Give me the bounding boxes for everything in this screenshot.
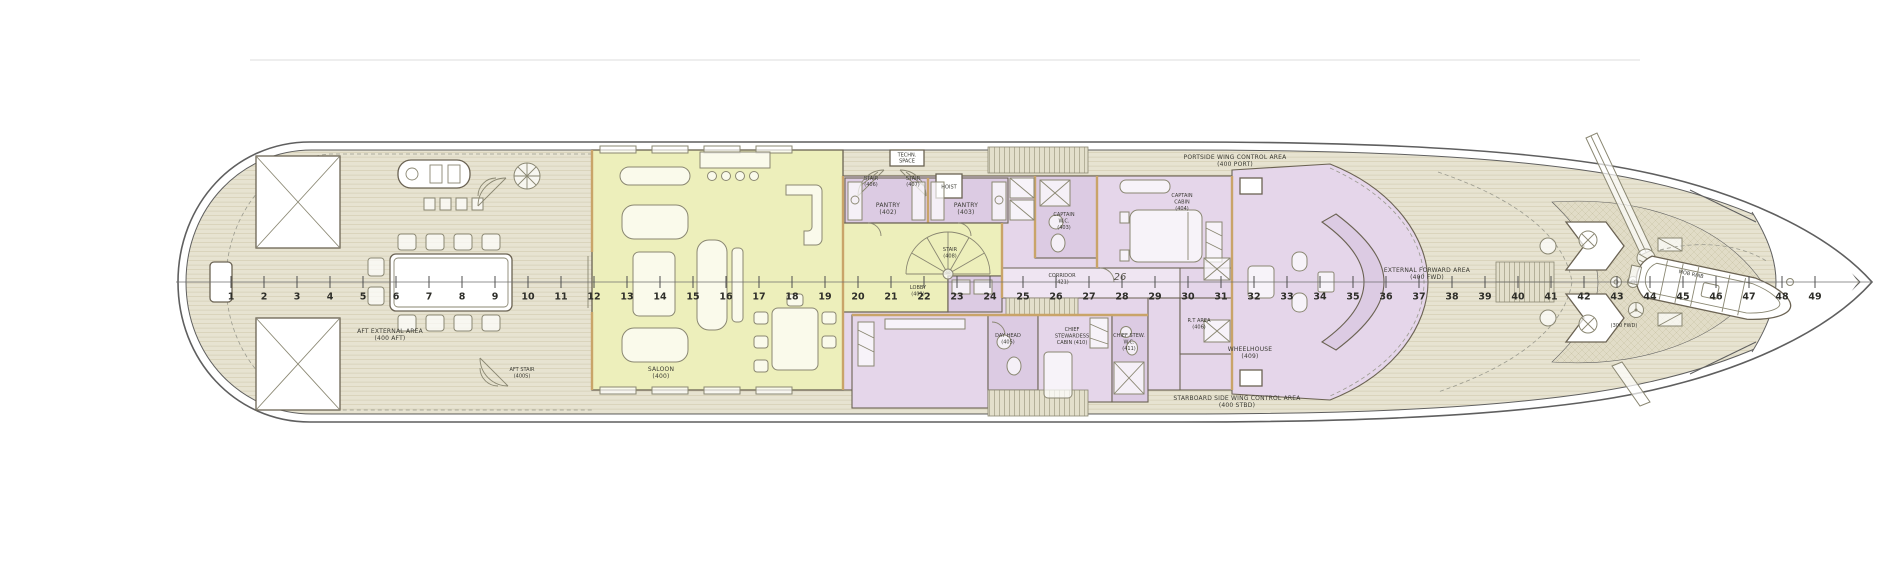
chair: [426, 234, 444, 250]
wing-door-stbd: [1240, 370, 1262, 386]
label-port-wing-num: (400 PORT): [1217, 161, 1253, 168]
chair: [368, 287, 384, 305]
frame-number: 3: [294, 292, 301, 303]
chair: [398, 234, 416, 250]
console-table: [620, 167, 690, 185]
frame-number: 42: [1577, 292, 1590, 303]
wing-door-port: [1240, 178, 1262, 194]
bar-stool: [440, 198, 451, 210]
frame-number: 39: [1478, 292, 1491, 303]
label-external-forward-num: (400 FWD): [1410, 274, 1444, 281]
foredeck-table-stbd-icon: [1540, 310, 1556, 326]
frame-number: 35: [1346, 292, 1359, 303]
shelf-unit: [858, 322, 874, 366]
frame-number: 12: [587, 292, 600, 303]
sofa: [1120, 180, 1170, 193]
frame-number: 24: [983, 292, 997, 303]
label-rt-area-num: (406): [1192, 325, 1205, 331]
chair: [822, 336, 836, 348]
frame-number: 36: [1379, 292, 1393, 303]
toilet-icon: [1051, 234, 1065, 252]
label-stair-port-2-num: (407): [906, 182, 919, 188]
foredeck-table-port-icon: [1540, 238, 1556, 254]
frame-number: 37: [1412, 292, 1425, 303]
side-table: [732, 248, 743, 322]
sofa: [622, 205, 688, 239]
label-frame-26-note: 26: [1114, 272, 1127, 283]
chair: [454, 315, 472, 331]
frame-number: 28: [1115, 292, 1129, 303]
label-captain-wc-3: (403): [1057, 225, 1070, 231]
label-lobby-num: (401): [911, 292, 924, 298]
label-techn-space-2: SPACE: [899, 159, 915, 165]
label-wheelhouse-num: (409): [1241, 353, 1258, 360]
frame-number: 16: [719, 292, 733, 303]
window: [756, 387, 792, 394]
window: [600, 387, 636, 394]
frame-number: 25: [1016, 292, 1029, 303]
frame-number: 9: [492, 292, 499, 303]
liferaft-hatch-port-icon: [256, 156, 340, 248]
label-captain-cabin-1: CAPTAIN: [1171, 193, 1192, 199]
deck-plan-drawing: MOB RHIB: [0, 0, 1900, 570]
frame-number: 26: [1049, 292, 1063, 303]
chair: [754, 360, 768, 372]
frame-number: 40: [1511, 292, 1525, 303]
label-saloon-num: (400): [652, 373, 669, 380]
frame-number: 8: [459, 292, 466, 303]
yacht-deck-plan-page: MOB RHIB: [0, 0, 1900, 570]
label-rt-area: R.T AREA: [1187, 318, 1211, 324]
frame-number: 32: [1247, 292, 1260, 303]
label-corridor-num: (421): [1055, 280, 1068, 286]
label-captain-cabin-3: (404): [1175, 206, 1188, 212]
frame-number: 43: [1610, 292, 1623, 303]
label-pantry-stbd: PANTRY: [954, 202, 978, 209]
coffee-table: [633, 252, 675, 316]
label-pantry-port: PANTRY: [876, 202, 900, 209]
window: [652, 146, 688, 153]
frame-number: 6: [393, 292, 400, 303]
label-captain-wc-2: W.C.: [1058, 219, 1069, 225]
label-stair-port-1-num: (406): [864, 182, 877, 188]
window: [600, 146, 636, 153]
frame-number: 29: [1148, 292, 1161, 303]
frame-number: 44: [1643, 292, 1657, 303]
label-chief-wc-2: W.C.: [1123, 340, 1134, 346]
chair: [482, 234, 500, 250]
bar-stool: [750, 172, 759, 181]
winch-port-icon: [1579, 231, 1597, 249]
label-aft-stair: AFT STAIR: [509, 367, 535, 373]
frame-number: 17: [752, 292, 765, 303]
frame-number: 23: [950, 292, 963, 303]
frame-number: 7: [426, 292, 433, 303]
frame-number: 14: [653, 292, 667, 303]
frame-number: 47: [1742, 292, 1755, 303]
helm-seat: [1292, 252, 1307, 271]
frame-number: 27: [1082, 292, 1095, 303]
bar-stool: [456, 198, 467, 210]
frame-number: 10: [521, 292, 535, 303]
frame-number: 19: [818, 292, 831, 303]
bar-stool: [722, 172, 731, 181]
frame-number: 21: [884, 292, 897, 303]
label-300-fwd: (300 FWD): [1611, 323, 1638, 329]
frame-number: 33: [1280, 292, 1293, 303]
chair: [368, 258, 384, 276]
frame-number: 15: [686, 292, 699, 303]
bed: [1130, 210, 1202, 262]
label-external-forward: EXTERNAL FORWARD AREA: [1384, 267, 1471, 274]
frame-number: 11: [554, 292, 567, 303]
helm-seat: [1292, 293, 1307, 312]
frame-number: 18: [785, 292, 799, 303]
frame-number: 34: [1313, 292, 1327, 303]
label-day-head-num: (405): [1001, 340, 1014, 346]
label-corridor: CORRIDOR: [1048, 273, 1076, 279]
label-lobby: LOBBY: [910, 285, 927, 291]
day-head-room: [988, 315, 1038, 390]
sofa: [622, 328, 688, 362]
label-chief-wc-1: CHIEF STEW.: [1113, 333, 1145, 339]
label-stbd-wing: STARBOARD SIDE WING CONTROL AREA: [1173, 395, 1301, 402]
label-aft-external: AFT EXTERNAL AREA: [357, 328, 424, 335]
frame-number: 5: [360, 292, 367, 303]
sideboard: [885, 319, 965, 329]
frame-number: 48: [1775, 292, 1789, 303]
frame-number: 38: [1445, 292, 1459, 303]
chair: [754, 336, 768, 348]
label-pantry-port-num: (402): [879, 209, 896, 216]
label-chief-cabin-2: STEWARDESS: [1055, 334, 1089, 340]
label-chief-cabin-3: CABIN (410): [1057, 340, 1088, 346]
saloon-dining-table: [772, 308, 818, 370]
frame-number: 45: [1676, 292, 1689, 303]
label-saloon: SALOON: [648, 366, 674, 373]
chair: [482, 315, 500, 331]
wardrobe: [1206, 222, 1222, 262]
frame-number: 31: [1214, 292, 1227, 303]
label-captain-cabin-2: CABIN: [1174, 200, 1190, 206]
label-stair-spiral: STAIR: [943, 247, 958, 253]
saloon-bar-counter: [700, 152, 770, 168]
label-aft-external-num: (400 AFT): [375, 335, 406, 342]
wheel-symbol-icon: [1629, 303, 1644, 318]
locker-room: [1148, 298, 1180, 390]
bar-stool: [472, 198, 483, 210]
toilet-icon: [1007, 357, 1021, 375]
label-stbd-wing-num: (400 STBD): [1219, 402, 1255, 409]
label-pantry-stbd-num: (403): [957, 209, 974, 216]
chair: [454, 234, 472, 250]
window: [652, 387, 688, 394]
frame-number: 2: [261, 292, 268, 303]
label-captain-wc-1: CAPTAIN: [1053, 212, 1074, 218]
frame-number: 1: [228, 292, 235, 303]
frame-number: 46: [1709, 292, 1723, 303]
label-hoist: HOIST: [941, 185, 957, 191]
frame-number: 13: [620, 292, 633, 303]
window: [704, 387, 740, 394]
port-gangway-treads: [988, 147, 1088, 173]
label-stair-spiral-num: (408): [943, 254, 956, 260]
label-day-head: DAY HEAD: [995, 333, 1021, 339]
chair: [426, 315, 444, 331]
chair: [822, 312, 836, 324]
bar-stool: [708, 172, 717, 181]
label-wheelhouse: WHEELHOUSE: [1228, 346, 1273, 353]
chaise: [697, 240, 727, 330]
parasol-table-icon: [514, 163, 540, 189]
bar-stool: [424, 198, 435, 210]
winch-stbd-icon: [1579, 315, 1597, 333]
label-chief-cabin-1: CHIEF: [1065, 327, 1080, 333]
stbd-gangway-treads: [988, 390, 1088, 416]
frame-number: 4: [327, 292, 334, 303]
frame-number: 41: [1544, 292, 1557, 303]
frame-number: 30: [1181, 292, 1195, 303]
bed: [1044, 352, 1072, 398]
chair: [754, 312, 768, 324]
frame-number: 20: [851, 292, 865, 303]
label-chief-wc-3: (411): [1122, 346, 1135, 352]
liferaft-hatch-stbd-icon: [256, 318, 340, 410]
bar-stool: [736, 172, 745, 181]
label-port-wing: PORTSIDE WING CONTROL AREA: [1184, 154, 1288, 161]
label-aft-stair-num: (400S): [514, 374, 531, 380]
frame-number: 49: [1808, 292, 1821, 303]
